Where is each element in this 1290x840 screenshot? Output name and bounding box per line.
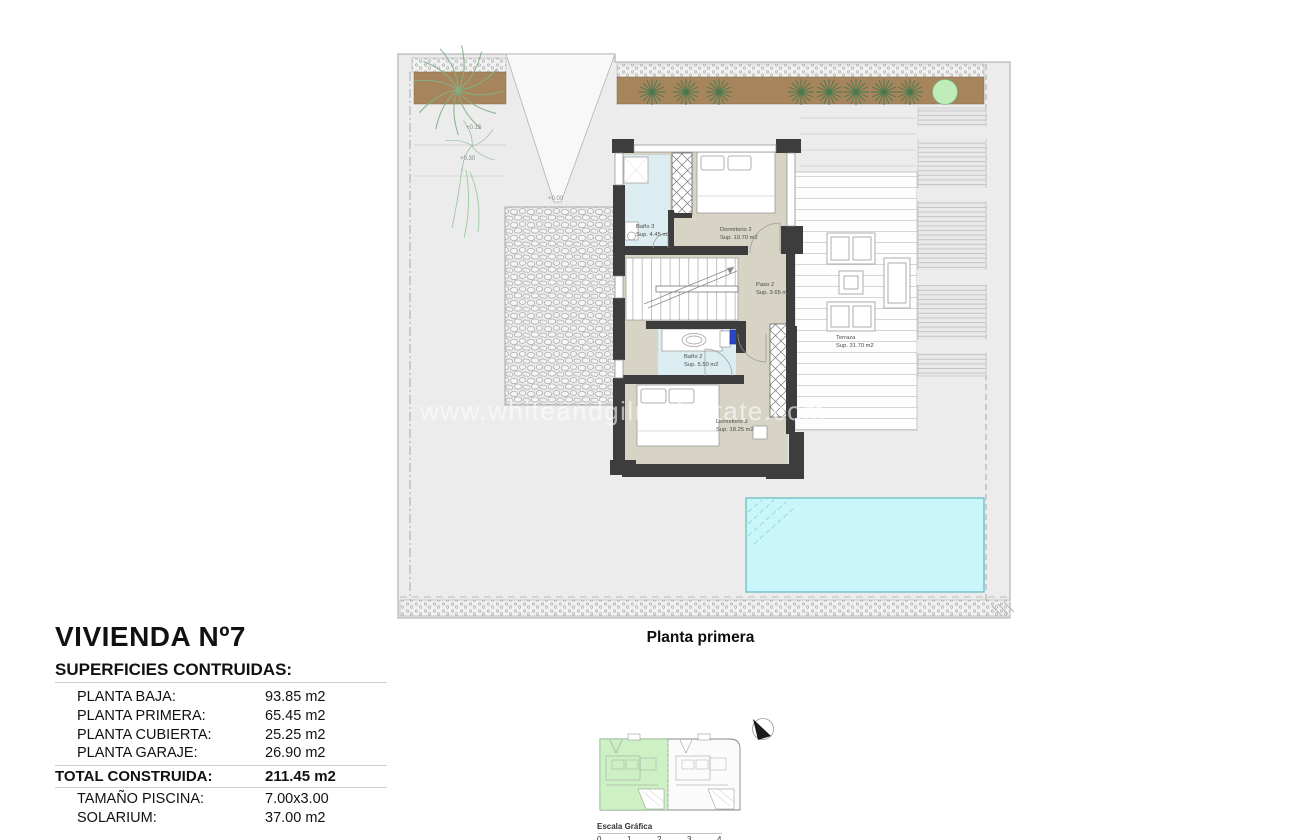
room-label-dorm2-name: Dormitorio 2 (720, 227, 752, 233)
sink-counter (662, 329, 722, 351)
level-label-driveway: +0.00 (548, 196, 564, 202)
surface-row-value: 7.00x3.00 (265, 790, 329, 809)
bed-dorm2 (697, 152, 775, 213)
plot-gravel-strip (400, 600, 1010, 616)
plan-caption: Planta primera (598, 629, 803, 647)
room-label-bano3-area: Sup. 4.45 m2 (636, 232, 670, 238)
room-label-paso2-name: Paso 2 (756, 282, 774, 288)
window-top (634, 145, 776, 152)
total-row: TOTAL CONSTRUIDA: 211.45 m2 (55, 765, 387, 788)
scale-tick-3: 3 (687, 835, 692, 840)
surface-row-value: 65.45 m2 (265, 707, 325, 726)
pergola-louvres (917, 108, 987, 376)
building: Baño 3 Sup. 4.45 m2 Dormitorio 2 Sup. 10… (610, 139, 804, 479)
window-left-1 (615, 153, 623, 185)
key-plan: Escala Gráfica 0 1 2 3 4 (597, 719, 774, 840)
surface-row-planta-garaje: PLANTA GARAJE: 26.90 m2 (55, 744, 387, 763)
scale-tick-4: 4 (717, 835, 722, 840)
surface-row-label: PLANTA GARAJE: (55, 744, 265, 763)
surface-row-solarium: SOLARIUM: 37.00 m2 (55, 809, 387, 828)
surface-row-planta-primera: PLANTA PRIMERA: 65.45 m2 (55, 707, 387, 726)
surface-row-label: PLANTA BAJA: (55, 688, 265, 707)
title-block: VIVIENDA Nº7 SUPERFICIES CONTRUIDAS: PLA… (55, 621, 387, 828)
surfaces-subtitle: SUPERFICIES CONTRUIDAS: (55, 660, 387, 680)
window-left-3 (615, 360, 623, 378)
total-label: TOTAL CONSTRUIDA: (55, 766, 265, 787)
staircase (626, 258, 738, 320)
room-label-terraza-area: Sup. 31.70 m2 (836, 343, 874, 349)
level-label-left-upper: +0.15 (466, 125, 482, 131)
surface-row-value: 37.00 m2 (265, 809, 325, 828)
room-label-dorm3-name: Dormitorio 3 (716, 419, 748, 425)
swimming-pool (746, 498, 984, 592)
surface-row-planta-cubierta: PLANTA CUBIERTA: 25.25 m2 (55, 726, 387, 745)
total-value: 211.45 m2 (265, 766, 336, 787)
room-label-paso2-area: Sup. 3.65 m2 (756, 290, 790, 296)
surface-row-label: TAMAÑO PISCINA: (55, 790, 265, 809)
scale-tick-1: 1 (627, 835, 632, 840)
scale-tick-0: 0 (597, 835, 602, 840)
surface-row-piscina: TAMAÑO PISCINA: 7.00x3.00 (55, 790, 387, 809)
surface-row-label: PLANTA CUBIERTA: (55, 726, 265, 745)
room-label-dorm3-area: Sup. 18.25 m2 (716, 427, 754, 433)
round-bush (933, 80, 958, 105)
cobble-path (505, 207, 632, 405)
nightstand (753, 426, 767, 439)
floor-plan-sheet: +0.15 +0.30 +0.00 +0.15 +0.30 Terraza Su… (0, 0, 1290, 840)
window-right-1 (787, 153, 795, 226)
divider (55, 682, 387, 683)
scale-label: Escala Gráfica (597, 822, 653, 831)
surface-row-value: 25.25 m2 (265, 726, 325, 745)
scale-tick-2: 2 (657, 835, 662, 840)
surface-row-value: 26.90 m2 (265, 744, 325, 763)
closet-dorm2 (672, 153, 692, 215)
room-label-bano2-area: Sup. 5.50 m2 (684, 362, 718, 368)
room-label-bano2-name: Baño 2 (684, 354, 702, 360)
surface-row-label: PLANTA PRIMERA: (55, 707, 265, 726)
room-label-bano3-name: Baño 3 (636, 224, 654, 230)
surface-row-label: SOLARIUM: (55, 809, 265, 828)
gravel-band-left (412, 58, 506, 72)
room-label-terraza-name: Terraza (836, 335, 856, 341)
toilet-bano2 (720, 331, 730, 347)
page-title: VIVIENDA Nº7 (55, 621, 387, 653)
toilet-cistern (730, 330, 737, 344)
gravel-band-right (617, 64, 984, 77)
closet-dorm3 (770, 324, 788, 417)
surface-row-planta-baja: PLANTA BAJA: 93.85 m2 (55, 688, 387, 707)
room-label-dorm2-area: Sup. 10.70 m2 (720, 235, 758, 241)
surface-row-value: 93.85 m2 (265, 688, 325, 707)
level-label-left-lower: +0.30 (460, 156, 476, 162)
window-left-2 (615, 276, 623, 298)
stair-handrail (656, 286, 738, 292)
north-arrow (753, 719, 774, 741)
